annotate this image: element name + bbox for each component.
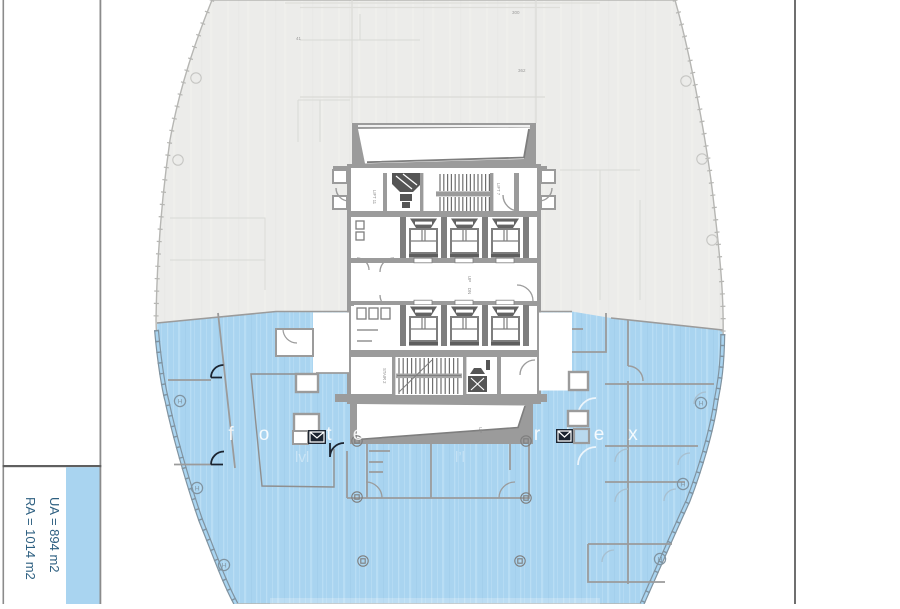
svg-text:362: 362 [518,68,526,73]
svg-text:t: t [326,424,332,445]
svg-text:e: e [353,424,364,445]
svg-text:DN: DN [467,288,472,294]
svg-text:e: e [594,424,605,445]
svg-text:H: H [178,399,183,406]
svg-text:l’l: l’l [455,449,465,466]
svg-text:H: H [658,557,663,564]
svg-text:o: o [259,424,270,445]
svg-text:lvl: lvl [295,449,309,466]
svg-text:RA = 1014 m2: RA = 1014 m2 [23,497,38,580]
svg-text:f: f [228,424,234,445]
svg-text:STAIR 2: STAIR 2 [382,368,387,384]
svg-text:300: 300 [512,10,520,15]
svg-text:r: r [534,424,541,445]
svg-text:H: H [222,563,227,570]
svg-text:LIFT 7: LIFT 7 [496,183,501,196]
svg-text:x: x [628,424,638,445]
svg-text:H: H [699,401,704,408]
svg-text:UP: UP [478,427,483,433]
svg-text:H: H [195,486,200,493]
svg-text:UA = 894 m2: UA = 894 m2 [47,497,62,573]
svg-text:41: 41 [296,36,302,41]
svg-text:UP: UP [467,276,472,282]
svg-text:LIFT 11: LIFT 11 [372,190,377,205]
svg-text:H: H [681,482,686,489]
